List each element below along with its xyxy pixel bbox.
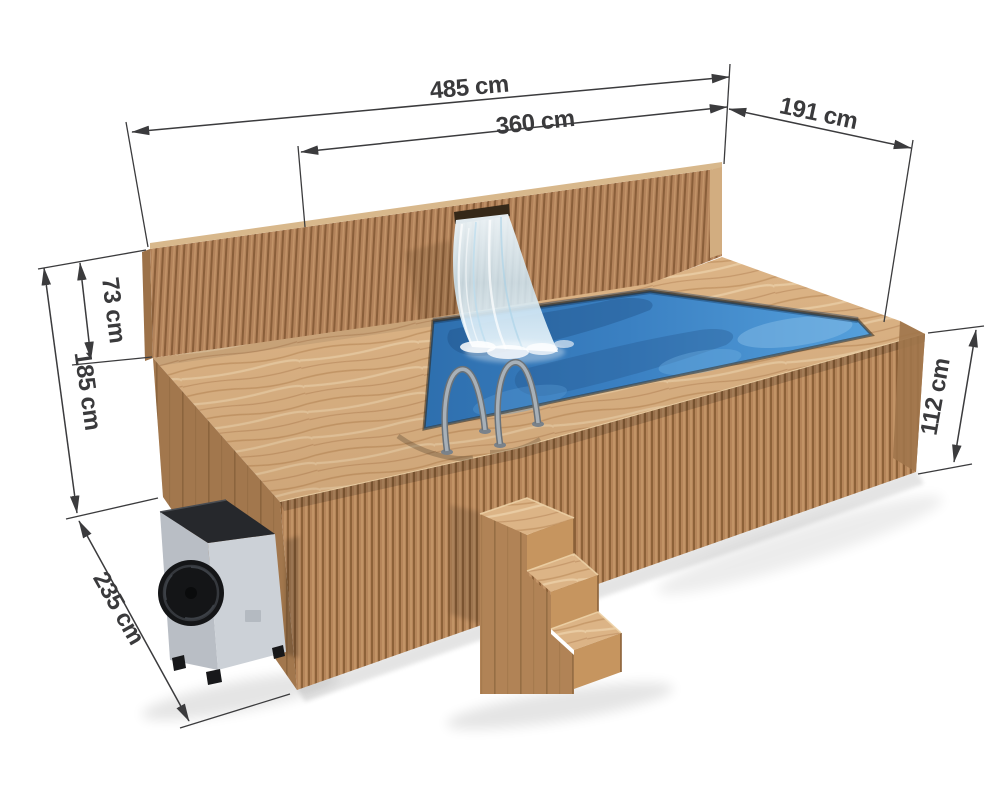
- dim-line-73: [80, 263, 91, 359]
- dim-label-235: 235 cm: [87, 567, 149, 649]
- wall-right-edge: [710, 167, 722, 258]
- dim-body-height: 112 cm: [916, 330, 976, 462]
- dim-label-360: 360 cm: [495, 105, 576, 140]
- dim-total-height: 185 cm: [44, 268, 106, 513]
- waterfall-foam: [526, 343, 558, 355]
- dim-label-73: 73 cm: [96, 276, 131, 345]
- extension-line: [724, 64, 730, 164]
- fan-hub: [185, 587, 197, 599]
- heat-pump-foot: [206, 669, 222, 685]
- extension-line: [126, 122, 148, 247]
- dim-overall-length: 485 cm: [132, 71, 729, 132]
- dim-line-112: [954, 330, 976, 462]
- extension-line: [66, 498, 158, 519]
- dimension-diagram: 485 cm 360 cm 191 cm 112 cm 73 cm 185 cm…: [0, 0, 1000, 800]
- dim-end-width: 191 cm: [729, 92, 911, 148]
- heat-pump-wall-shadow: [286, 536, 299, 658]
- dim-inner-length: 360 cm: [301, 105, 727, 152]
- dim-label-485: 485 cm: [429, 71, 510, 105]
- dim-wall-above-deck: 73 cm: [80, 263, 131, 359]
- diagram-canvas: 485 cm 360 cm 191 cm 112 cm 73 cm 185 cm…: [0, 0, 1000, 800]
- extension-line: [38, 250, 146, 269]
- dim-line-185: [44, 268, 77, 513]
- extension-line: [918, 464, 972, 474]
- waterfall-foam: [487, 345, 529, 359]
- waterfall-foam: [554, 340, 574, 348]
- stairs-wall-shadow: [450, 505, 480, 624]
- heat-pump-label: [245, 610, 261, 622]
- extension-line: [884, 140, 913, 322]
- extension-line: [298, 146, 305, 227]
